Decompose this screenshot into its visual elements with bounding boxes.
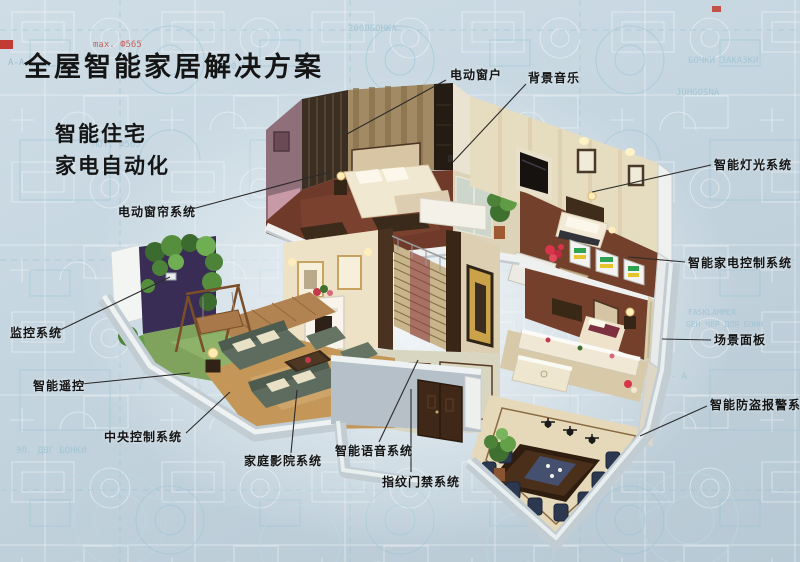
leader-line-electric-window	[347, 80, 446, 134]
leader-line-smart-voice-system	[379, 360, 418, 442]
callout-smart-burglar-alarm: 智能防盗报警系统	[710, 396, 800, 413]
callout-background-music: 背景音乐	[528, 69, 580, 86]
callout-central-control-system: 中央控制系统	[104, 428, 182, 445]
page-title: 全屋智能家居解决方案	[24, 52, 324, 84]
leader-line-electric-curtain-system	[192, 172, 330, 209]
callout-smart-lighting-system: 智能灯光系统	[714, 156, 792, 173]
callout-electric-window: 电动窗户	[450, 66, 502, 83]
leader-line-monitoring-system	[58, 277, 170, 331]
subtitle-line-1: 智能住宅	[55, 118, 147, 148]
leader-line-smart-remote	[81, 373, 190, 384]
leader-line-background-music	[453, 84, 526, 162]
callout-fingerprint-access: 指纹门禁系统	[382, 473, 460, 490]
callout-smart-voice-system: 智能语音系统	[335, 442, 413, 459]
leader-line-smart-lighting-system	[592, 165, 711, 192]
leader-line-scene-panel	[662, 339, 711, 340]
leader-line-smart-burglar-alarm	[640, 406, 707, 436]
callout-monitoring-system: 监控系统	[10, 324, 62, 341]
title-block: 全屋智能家居解决方案	[24, 52, 324, 84]
callout-smart-remote: 智能遥控	[33, 377, 85, 394]
leader-line-smart-appliance-control	[628, 257, 685, 262]
callout-smart-appliance-control: 智能家电控制系统	[688, 254, 792, 271]
callout-home-theater-system: 家庭影院系统	[244, 452, 322, 469]
callout-electric-curtain-system: 电动窗帘系统	[118, 203, 196, 220]
leader-line-home-theater-system	[291, 390, 297, 453]
leader-line-central-control-system	[186, 392, 230, 433]
smart-home-poster: A-Amax. Ф565200-FA5200ЛБОНКАmin. 820ПОТ.…	[0, 0, 800, 562]
subtitle-line-2: 家电自动化	[55, 150, 170, 180]
callout-scene-panel: 场景面板	[714, 331, 766, 348]
